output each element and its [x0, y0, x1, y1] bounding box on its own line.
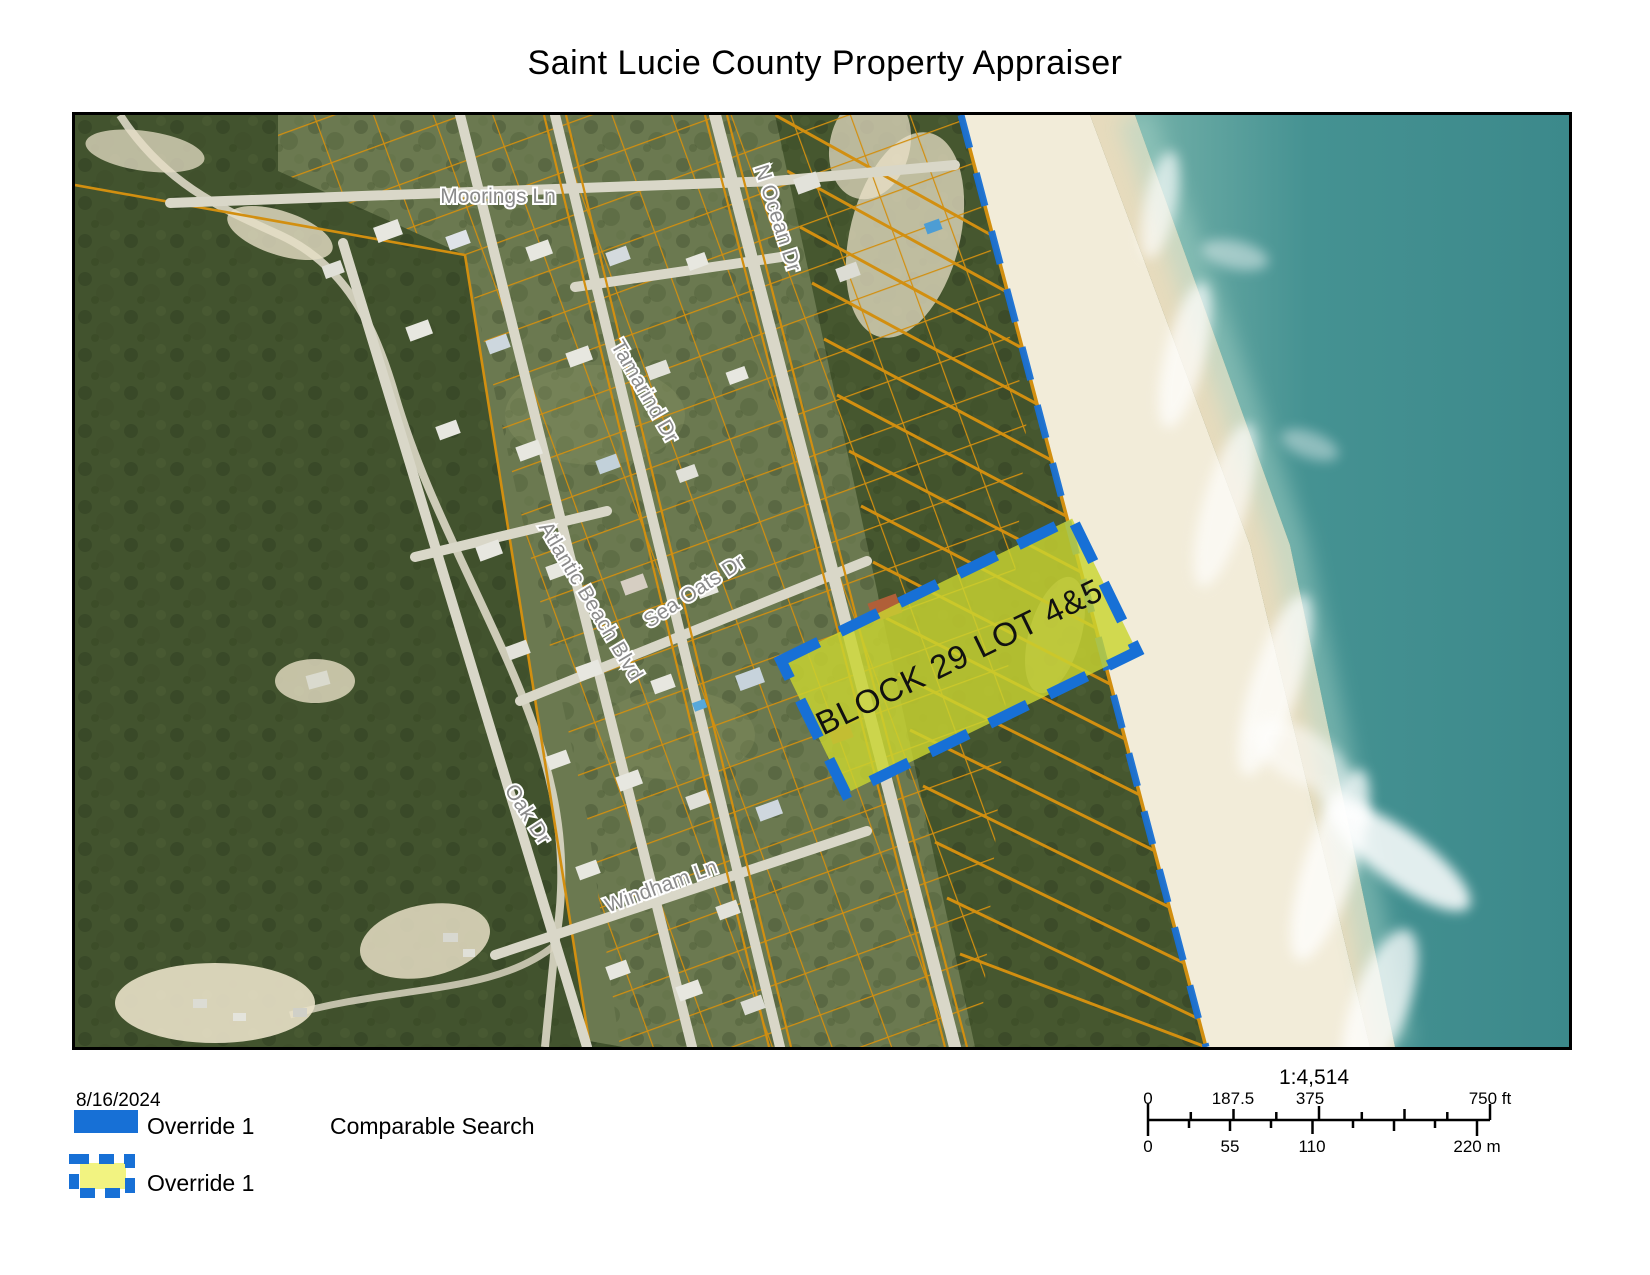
scale-m-0: 0 — [1143, 1137, 1152, 1156]
scale-ticks-ft — [1148, 1104, 1490, 1120]
scale-m-2: 110 — [1298, 1137, 1325, 1156]
aerial-map: BLOCK 29 LOT 4&5 Moorings Ln N Ocean Dr … — [72, 112, 1572, 1050]
scale-ratio: 1:4,514 — [1279, 1066, 1349, 1089]
page-title: Saint Lucie County Property Appraiser — [0, 44, 1650, 83]
override1-label: Override 1 — [147, 1113, 254, 1140]
scale-ft-1: 187.5 — [1212, 1089, 1255, 1108]
scalebar: 1:4,514 0 187.5 375 750 ft 0 — [1138, 1066, 1522, 1158]
override2-label: Override 1 — [147, 1170, 254, 1197]
scale-m-3: 220 m — [1453, 1137, 1500, 1156]
label-moorings-ln: Moorings Ln — [440, 185, 556, 208]
override1-swatch — [74, 1110, 138, 1133]
comparable-search-label: Comparable Search — [330, 1113, 535, 1140]
override2-swatch — [66, 1152, 138, 1200]
legend-date: 8/16/2024 — [76, 1090, 161, 1112]
scale-ticks-m — [1148, 1120, 1477, 1136]
map-canvas: BLOCK 29 LOT 4&5 Moorings Ln N Ocean Dr … — [75, 115, 1569, 1047]
scale-m-1: 55 — [1221, 1137, 1240, 1156]
scale-ft-2: 375 — [1296, 1089, 1324, 1108]
